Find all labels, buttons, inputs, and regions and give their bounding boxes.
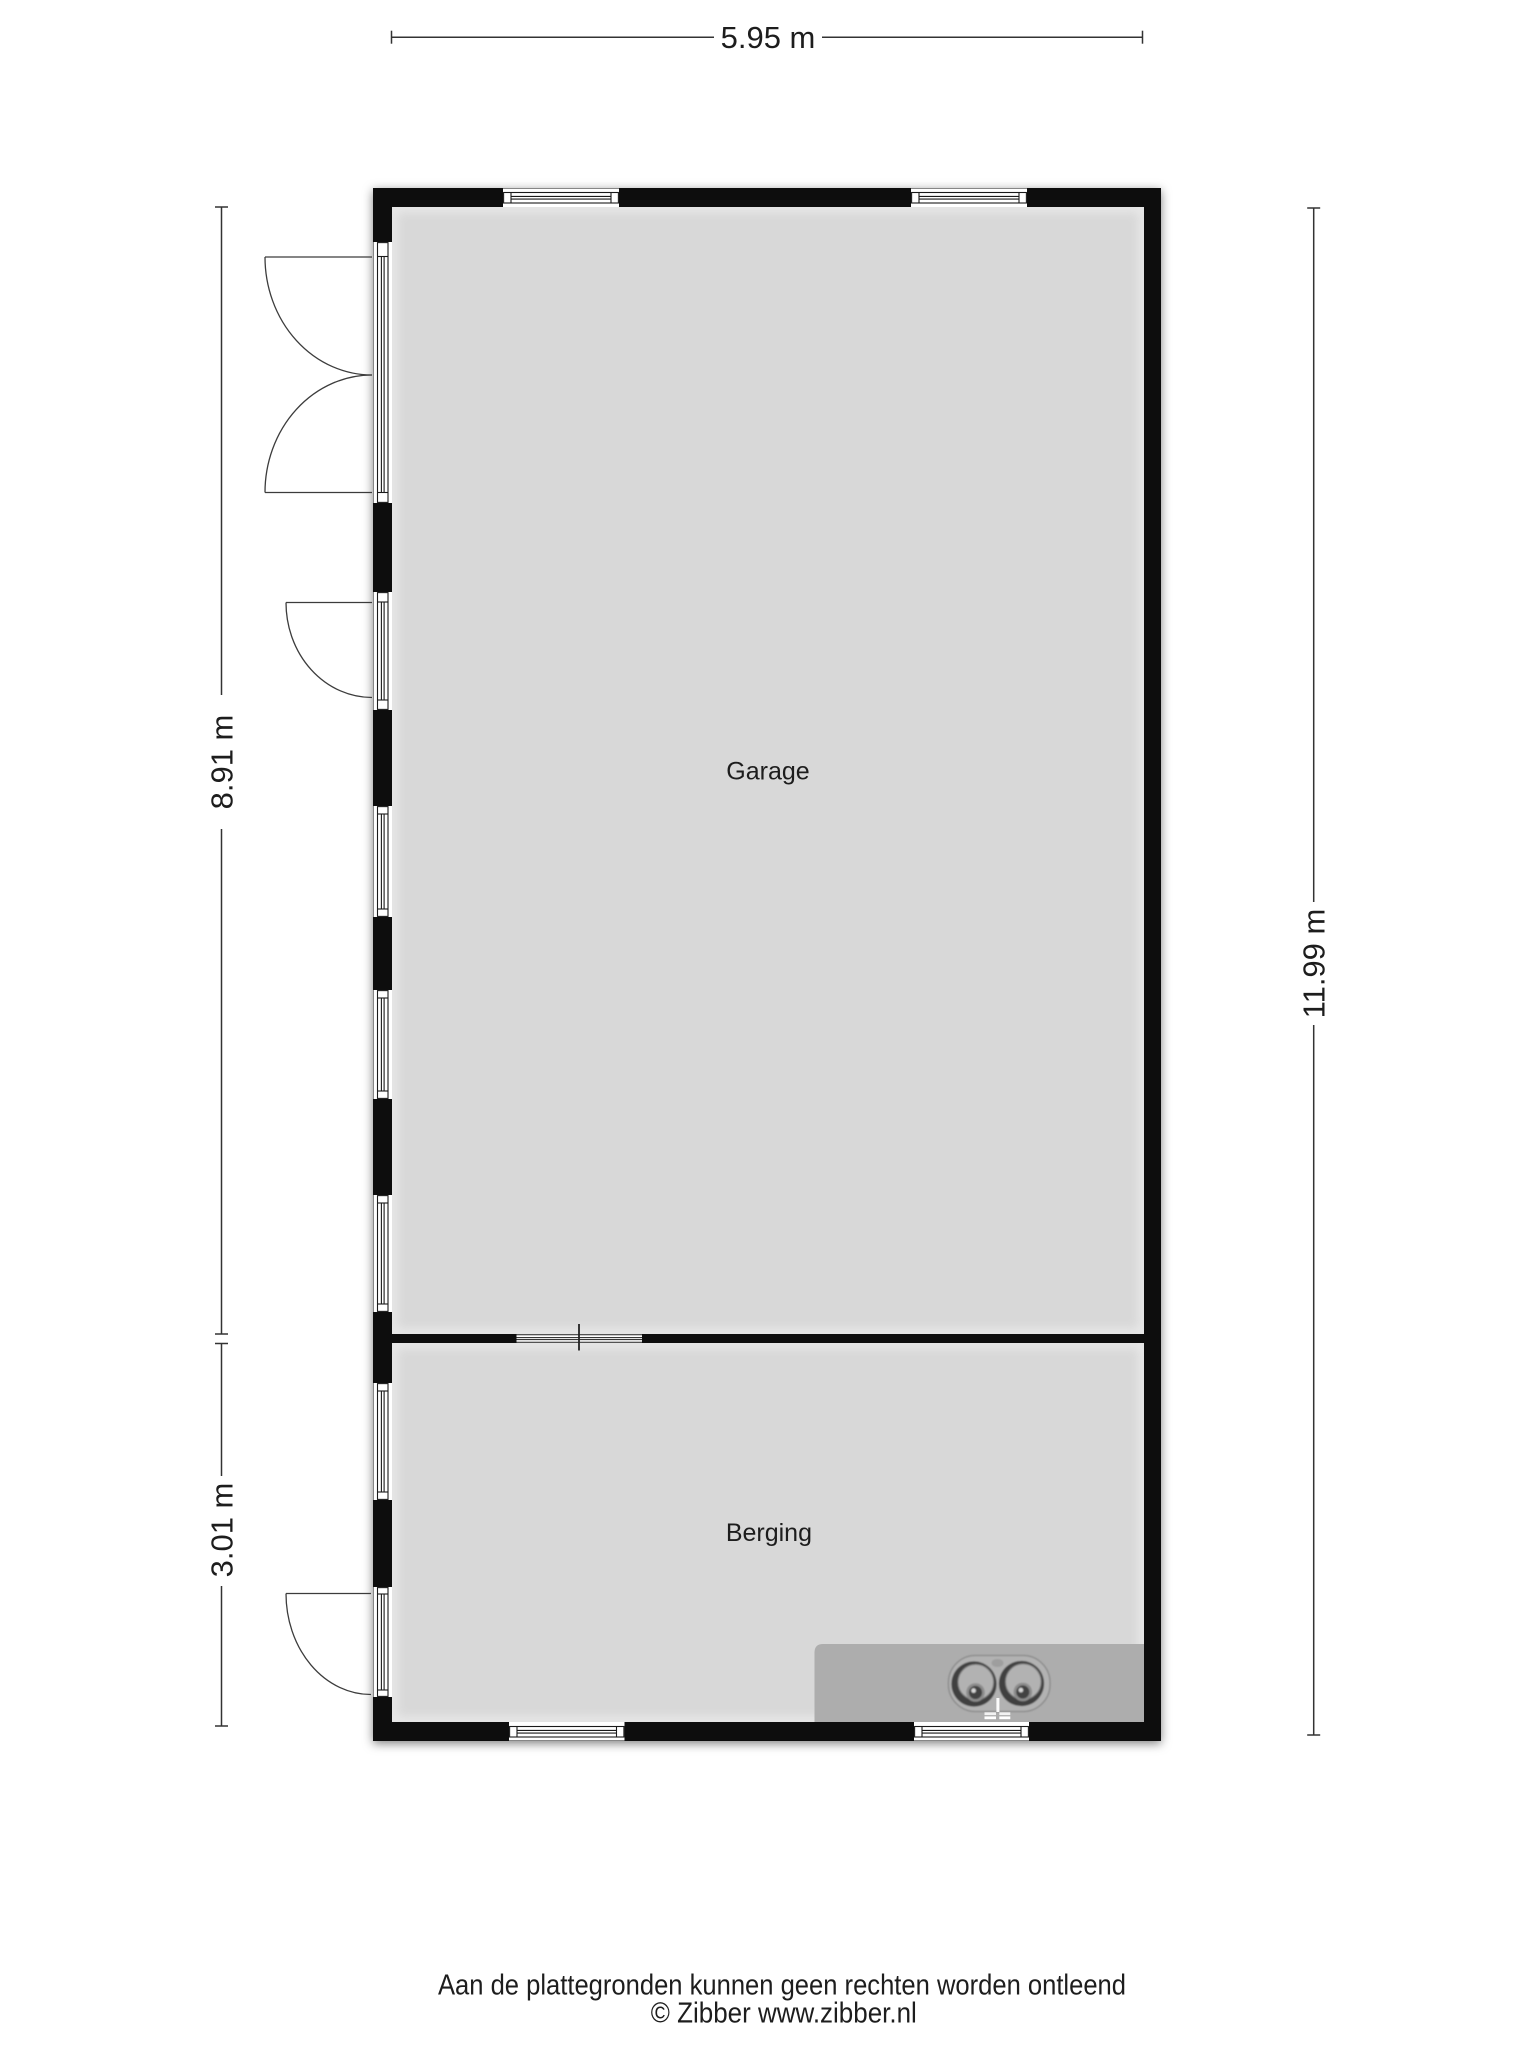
svg-text:8.91 m: 8.91 m [205,715,240,810]
svg-text:Berging: Berging [726,1519,812,1547]
svg-text:3.01 m: 3.01 m [205,1483,240,1578]
svg-text:Garage: Garage [726,758,809,786]
svg-text:5.95 m: 5.95 m [721,20,816,55]
svg-text:11.99 m: 11.99 m [1297,909,1332,1019]
svg-text:© Zibber www.zibber.nl: © Zibber www.zibber.nl [651,1998,917,2030]
